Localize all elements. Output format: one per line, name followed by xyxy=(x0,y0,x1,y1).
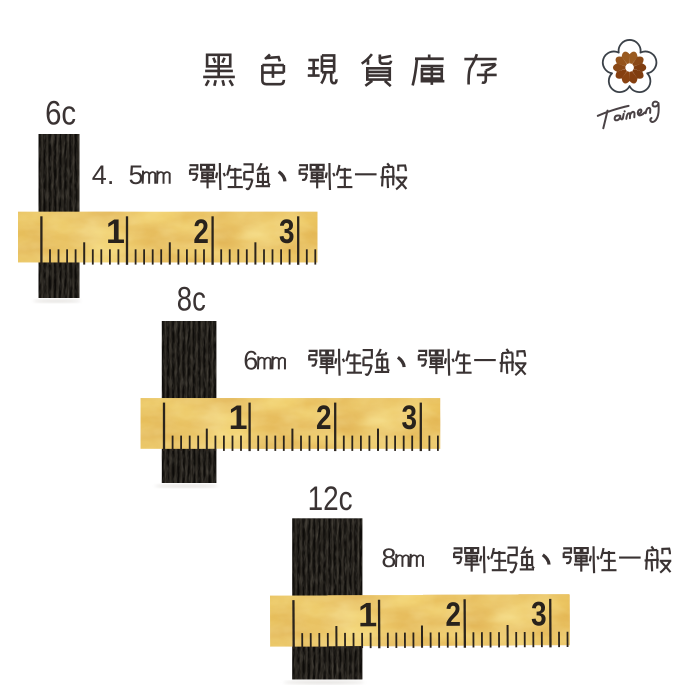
svg-text:8c: 8c xyxy=(177,281,206,319)
svg-text:1: 1 xyxy=(229,399,248,437)
svg-text:3: 3 xyxy=(279,213,295,251)
svg-text:5: 5 xyxy=(129,160,144,190)
svg-text:3: 3 xyxy=(531,595,547,633)
svg-text:2: 2 xyxy=(445,596,461,634)
svg-text:1: 1 xyxy=(358,596,377,634)
svg-text:3: 3 xyxy=(402,399,418,437)
svg-text:4.: 4. xyxy=(92,160,115,190)
svg-text:2: 2 xyxy=(193,213,209,251)
svg-text:8: 8 xyxy=(381,543,396,573)
svg-text:12c: 12c xyxy=(308,480,353,518)
svg-text:1: 1 xyxy=(106,213,125,251)
svg-text:2: 2 xyxy=(316,399,332,437)
svg-text:6: 6 xyxy=(243,346,258,376)
svg-text:6c: 6c xyxy=(45,95,76,133)
